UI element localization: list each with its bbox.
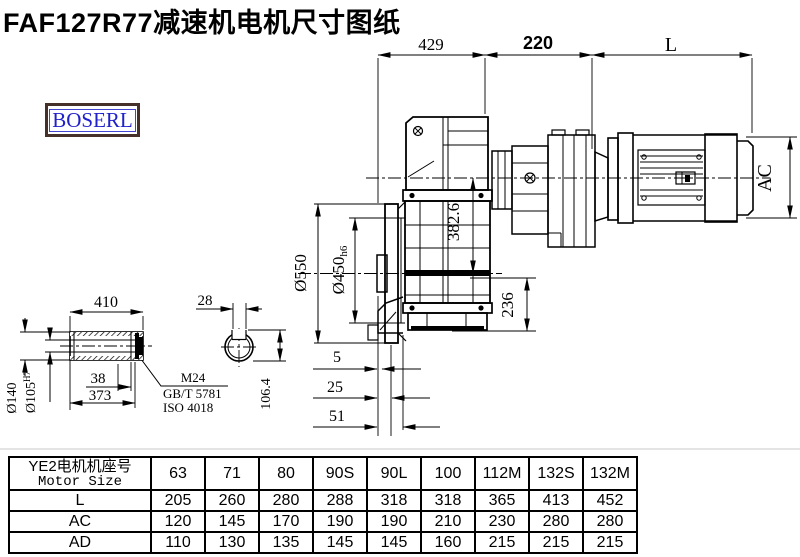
cell-AC-112M: 230 <box>475 511 529 532</box>
dim-51: 51 <box>329 408 345 425</box>
col-63: 63 <box>151 457 205 490</box>
leader-iso: ISO 4018 <box>163 400 213 415</box>
cell-AD-100: 160 <box>421 532 475 553</box>
cell-AD-112M: 215 <box>475 532 529 553</box>
row-label-L: L <box>9 490 151 511</box>
motor-size-header-cell: YE2电机机座号 Motor Size <box>9 457 151 490</box>
col-90L: 90L <box>367 457 421 490</box>
output-flange <box>368 201 406 343</box>
col-90S: 90S <box>313 457 367 490</box>
dim-AC: AC <box>754 164 776 192</box>
col-112M: 112M <box>475 457 529 490</box>
dim-38: 38 <box>91 371 106 387</box>
dim-5: 5 <box>333 349 341 366</box>
cell-AD-90L: 145 <box>367 532 421 553</box>
header-en: Motor Size <box>10 475 150 489</box>
cell-AC-132M: 280 <box>583 511 637 532</box>
table-row-L: L 205 260 280 288 318 318 365 413 452 <box>9 490 637 511</box>
cell-L-132M: 452 <box>583 490 637 511</box>
cell-L-90L: 318 <box>367 490 421 511</box>
cell-AD-132M: 215 <box>583 532 637 553</box>
r-stage-unit <box>492 130 608 247</box>
cell-AD-63: 110 <box>151 532 205 553</box>
cell-AD-80: 135 <box>259 532 313 553</box>
dim-429: 429 <box>418 35 444 54</box>
dim-236: 236 <box>498 292 517 318</box>
dimension-labels: 429 220 L AC 382.6 236 Ø550 Ø450h6 410 3… <box>5 33 776 425</box>
col-132S: 132S <box>529 457 583 490</box>
cell-L-112M: 365 <box>475 490 529 511</box>
col-71: 71 <box>205 457 259 490</box>
cell-AC-63: 120 <box>151 511 205 532</box>
cell-AC-80: 170 <box>259 511 313 532</box>
cell-L-71: 260 <box>205 490 259 511</box>
dim-flange-od: Ø550 <box>291 254 310 292</box>
dim-220: 220 <box>523 33 553 53</box>
cell-AC-100: 210 <box>421 511 475 532</box>
dim-L: L <box>665 34 677 56</box>
cell-AC-90S: 190 <box>313 511 367 532</box>
dim-410: 410 <box>94 294 118 311</box>
dim-bore: Ø105H7 <box>22 370 39 413</box>
dim-28: 28 <box>198 293 213 309</box>
row-label-AD: AD <box>9 532 151 553</box>
row-label-AC: AC <box>9 511 151 532</box>
leader-gbt: GB/T 5781 <box>163 386 222 401</box>
cell-L-80: 280 <box>259 490 313 511</box>
table-row-AD: AD 110 130 135 145 145 160 215 215 215 <box>9 532 637 553</box>
cell-L-100: 318 <box>421 490 475 511</box>
cell-L-63: 205 <box>151 490 205 511</box>
cell-L-132S: 413 <box>529 490 583 511</box>
dim-25: 25 <box>327 379 343 396</box>
dim-shaft-od: Ø140 <box>5 382 20 413</box>
cell-AC-71: 145 <box>205 511 259 532</box>
cell-AD-132S: 215 <box>529 532 583 553</box>
leader-m24: M24 <box>181 370 206 385</box>
col-100: 100 <box>421 457 475 490</box>
dim-373: 373 <box>89 388 112 404</box>
dim-spigot: Ø450h6 <box>329 245 350 294</box>
cell-AC-90L: 190 <box>367 511 421 532</box>
cell-AC-132S: 280 <box>529 511 583 532</box>
col-80: 80 <box>259 457 313 490</box>
col-132M: 132M <box>583 457 637 490</box>
cell-AD-90S: 145 <box>313 532 367 553</box>
motor-size-table: YE2电机机座号 Motor Size 63 71 80 90S 90L 100… <box>8 456 638 554</box>
dim-382-6: 382.6 <box>444 203 463 241</box>
header-zh: YE2电机机座号 <box>10 459 150 475</box>
cell-L-90S: 288 <box>313 490 367 511</box>
table-header-row: YE2电机机座号 Motor Size 63 71 80 90S 90L 100… <box>9 457 637 490</box>
table-row-AC: AC 120 145 170 190 190 210 230 280 280 <box>9 511 637 532</box>
extension-lines <box>20 58 797 436</box>
dimension-lines <box>25 55 790 427</box>
cell-AD-71: 130 <box>205 532 259 553</box>
dim-106-4: 106.4 <box>259 378 274 410</box>
